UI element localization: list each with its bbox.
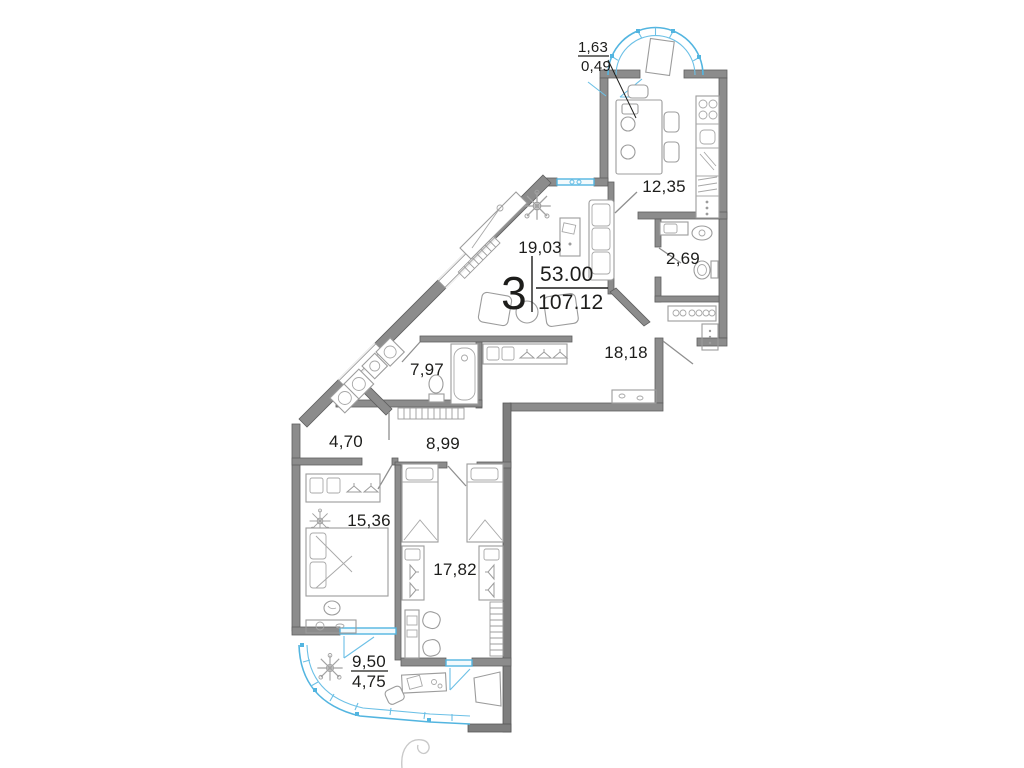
bedroom-furniture	[306, 474, 388, 633]
plant-icon	[317, 654, 342, 681]
stool	[324, 601, 340, 615]
balcony-top-area-reduced: 0,49	[581, 58, 611, 75]
room-label-kitchen: 12,35	[642, 177, 686, 196]
apartment-summary: 3 53.00 107.12	[501, 256, 608, 319]
radiator	[398, 408, 464, 419]
balcony-top-area-full: 1,63	[578, 39, 608, 56]
living-room-window	[557, 179, 594, 185]
toilet	[429, 394, 444, 402]
summary-total-area: 107.12	[538, 291, 603, 314]
room-label-corridor: 8,99	[426, 434, 460, 453]
balcony-bottom-area-full: 9,50	[352, 652, 386, 671]
floor-plan-page: 1,63 0,49 12,35 2,69 19,03 18,18 7,97 4,…	[0, 0, 1024, 768]
balcony-cabinet	[474, 672, 501, 706]
chair	[421, 610, 442, 630]
room-label-living: 19,03	[518, 238, 562, 257]
balcony-door-panel	[646, 38, 674, 75]
hall-furniture	[483, 306, 718, 403]
kids-balcony-door	[446, 660, 472, 690]
summary-living-area: 53.00	[540, 263, 594, 286]
room-label-hall: 18,18	[604, 343, 648, 362]
kids-door	[448, 466, 466, 486]
room-label-laundry: 4,70	[329, 432, 363, 451]
room-label-bathroom: 7,97	[410, 360, 444, 379]
balcony-bottom-area-reduced: 4,75	[352, 672, 386, 691]
floor-plan-canvas: 1,63 0,49 12,35 2,69 19,03 18,18 7,97 4,…	[0, 0, 1024, 768]
chair	[422, 638, 442, 657]
entrance-door	[663, 341, 693, 364]
room-label-wc: 2,69	[666, 249, 700, 268]
radiator	[490, 602, 503, 656]
room-label-bedroom: 15,36	[347, 511, 391, 530]
summary-rooms-count: 3	[501, 267, 527, 319]
room-label-kids: 17,82	[433, 560, 477, 579]
neighbor-balcony-fragment	[402, 740, 429, 768]
kitchen-door	[615, 192, 637, 213]
